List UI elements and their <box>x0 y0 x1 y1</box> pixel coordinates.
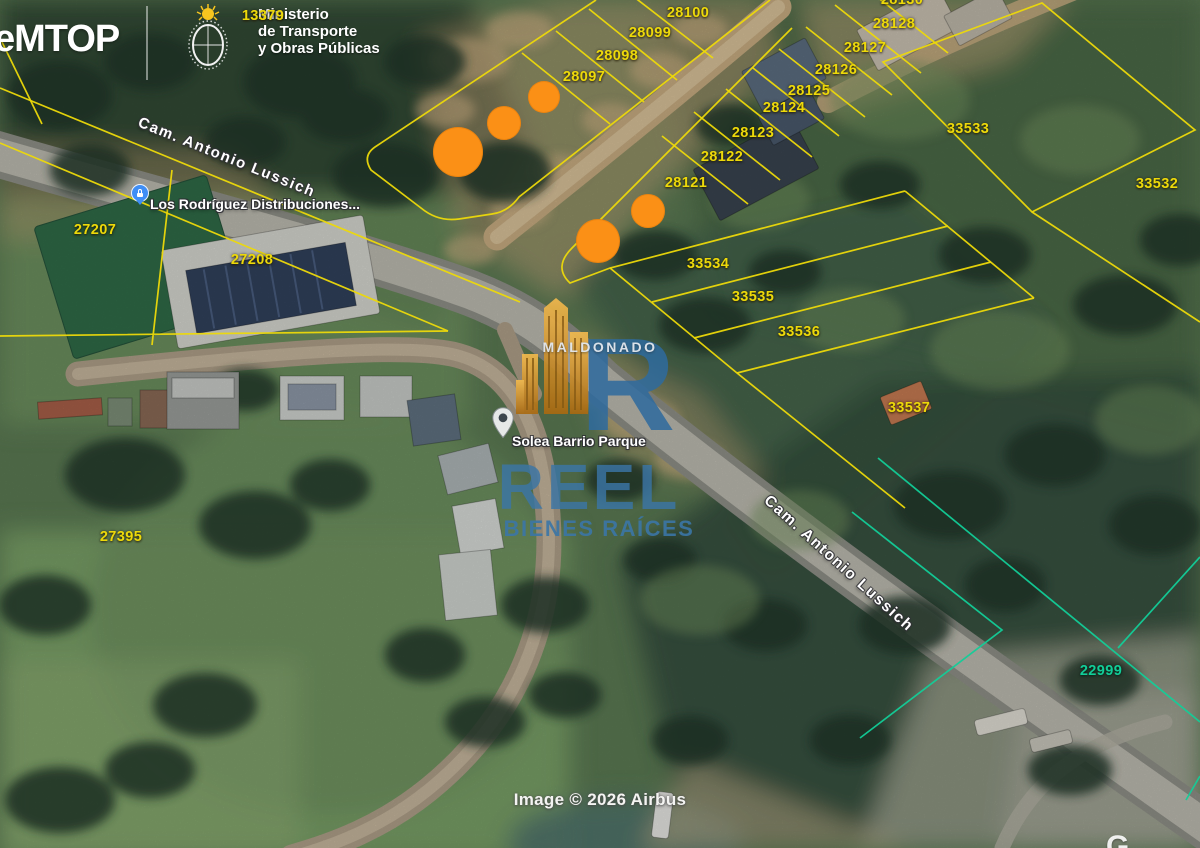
poi-marker-solea[interactable] <box>492 407 514 444</box>
header-divider <box>146 6 148 80</box>
listing-marker-2[interactable] <box>487 106 521 140</box>
parcel-label-28128: 28128 <box>873 16 915 32</box>
parcel-label-27208: 27208 <box>231 252 273 268</box>
satellite-imagery <box>0 0 1200 848</box>
poi-label-solea[interactable]: Solea Barrio Parque <box>512 433 646 449</box>
listing-marker-4[interactable] <box>576 219 620 263</box>
parcel-label-33535: 33535 <box>732 289 774 305</box>
parcel-label-28097: 28097 <box>563 69 605 85</box>
parcel-label-28130: 28130 <box>881 0 923 8</box>
parcel-label-28125: 28125 <box>788 83 830 99</box>
parcel-label-33537: 33537 <box>888 400 930 416</box>
map-viewport[interactable]: Cam. Antonio Lussich Cam. Antonio Lussic… <box>0 0 1200 848</box>
parcel-label-27395: 27395 <box>100 529 142 545</box>
parcel-label-28098: 28098 <box>596 48 638 64</box>
grain-texture <box>0 0 1200 848</box>
parcel-label-13379: 13379 <box>242 8 284 24</box>
parcel-label-28126: 28126 <box>815 62 857 78</box>
parcel-label-28123: 28123 <box>732 125 774 141</box>
google-logo-partial: G <box>1106 830 1129 848</box>
parcel-label-28122: 28122 <box>701 149 743 165</box>
parcel-label-33532: 33532 <box>1136 176 1178 192</box>
parcel-label-27207: 27207 <box>74 222 116 238</box>
imagery-attribution: Image © 2026 Airbus <box>514 790 687 810</box>
parcel-label-28124: 28124 <box>763 100 805 116</box>
uruguay-coat-of-arms-icon <box>176 2 240 77</box>
parcel-label-22999: 22999 <box>1080 663 1122 679</box>
parcel-label-28127: 28127 <box>844 40 886 56</box>
poi-marker-los-rodriguez[interactable] <box>131 184 149 202</box>
poi-label-los-rodriguez[interactable]: Los Rodríguez Distribuciones... <box>150 196 360 212</box>
parcel-label-28099: 28099 <box>629 25 671 41</box>
listing-marker-5[interactable] <box>631 194 665 228</box>
app-title: eMTOP <box>0 18 119 61</box>
map-pin-icon <box>492 407 514 439</box>
listing-marker-3[interactable] <box>528 81 560 113</box>
parcel-label-28121: 28121 <box>665 175 707 191</box>
parcel-label-33534: 33534 <box>687 256 729 272</box>
parcel-label-33536: 33536 <box>778 324 820 340</box>
listing-marker-1[interactable] <box>433 127 483 177</box>
parcel-label-33533: 33533 <box>947 121 989 137</box>
parcel-label-28100: 28100 <box>667 5 709 21</box>
